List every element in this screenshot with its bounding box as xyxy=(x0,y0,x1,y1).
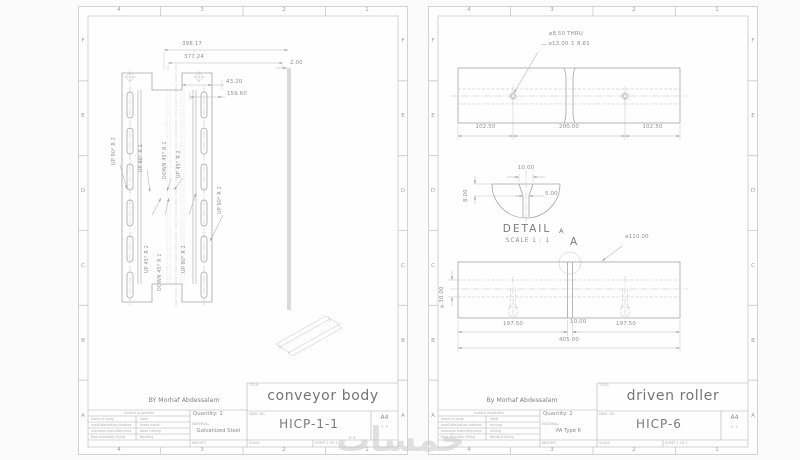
property-label: final assembly fixing xyxy=(91,436,125,439)
bend-note: UP 90° R 2 xyxy=(113,109,118,165)
sheet-size: A4 xyxy=(721,415,748,421)
grid-col-label: 1 xyxy=(707,448,727,454)
property-value: bending xyxy=(140,436,153,439)
projection-marks-icon: ✳ ✳ xyxy=(721,425,748,429)
flat-pattern-view xyxy=(122,64,212,308)
property-value: turning xyxy=(490,424,502,427)
bend-note: UP 90° R 2 xyxy=(219,158,224,214)
grid-col-label: 2 xyxy=(274,8,294,14)
grid-row-label: B xyxy=(429,339,437,345)
grid-row-label: E xyxy=(399,114,407,120)
grid-col-label: 2 xyxy=(274,448,294,454)
bend-note: UP 90° R 2 xyxy=(140,116,145,172)
dwg-no-label: DWG. NO. xyxy=(599,413,615,416)
quantity: Quantity: 1 xyxy=(193,412,223,417)
dwg-no: HICP-6 xyxy=(599,418,719,430)
dim-left-span: 102.50 xyxy=(470,125,501,130)
title-label: TITLE: xyxy=(249,384,259,387)
property-label: blank or body xyxy=(91,418,114,421)
side-view xyxy=(288,68,290,310)
author-note: BY Morhaf Abdessalam xyxy=(124,398,244,404)
grid-col-label: 4 xyxy=(459,8,479,14)
bend-note: UP 45° R 2 xyxy=(178,122,183,178)
grid-row-label: E xyxy=(429,114,437,120)
grid-row-label: C xyxy=(399,264,407,270)
page: 4 3 2 1 4 3 2 1 F E D C B A F E D C B A … xyxy=(0,0,800,460)
grid-col-label: 3 xyxy=(192,448,212,454)
grid-row-label: D xyxy=(749,189,757,195)
grid-row-label: E xyxy=(79,114,87,120)
scale-label: SCALE xyxy=(599,442,610,445)
material-value: PA Type 6 xyxy=(540,429,597,434)
grid-col-label: 1 xyxy=(357,8,377,14)
detail-scale: SCALE 1 : 1 xyxy=(501,239,555,245)
bend-note: UP 90° R 2 xyxy=(183,217,188,273)
dim-diameter-110: ⌀110.00 xyxy=(614,235,660,240)
grid-col-label: 4 xyxy=(109,8,129,14)
grid-row-label: B xyxy=(749,339,757,345)
scale-label: SCALE xyxy=(249,442,260,445)
hole-callout-line1: ⌀8.50 THRU xyxy=(534,32,598,37)
dim-diameter-30: ⌀30.00 xyxy=(440,273,445,309)
dim-thickness: 2.00 xyxy=(290,61,303,66)
dim-right-span: 102.50 xyxy=(637,125,668,130)
grid-row-label: A xyxy=(79,414,87,420)
grid-col-label: 3 xyxy=(192,8,212,14)
sheet-driven-roller: 4 3 2 1 4 3 2 1 F E D C B A F E D C B A … xyxy=(428,6,758,455)
dim-overall-length: 405.00 xyxy=(554,338,584,343)
weight-label: WEIGHT: xyxy=(542,442,556,445)
grid-row-label: A xyxy=(399,414,407,420)
detail-marker-letter: A xyxy=(570,237,577,248)
grid-col-label: 4 xyxy=(109,448,129,454)
material-label: MATERIAL: xyxy=(542,423,559,426)
sheet-count-label: SHEET 1 OF 1 xyxy=(665,442,688,445)
property-value: fitting & fixing xyxy=(490,436,514,439)
dim-pitch: 159.60 xyxy=(227,92,247,97)
top-view xyxy=(450,68,688,123)
grid-col-label: 2 xyxy=(624,448,644,454)
grid-row-label: A xyxy=(749,414,757,420)
grid-row-label: E xyxy=(749,114,757,120)
grid-row-label: B xyxy=(399,339,407,345)
grid-row-label: C xyxy=(79,264,87,270)
property-value: laser cutting xyxy=(140,430,161,433)
bend-note: DOWN 45° R 2 xyxy=(164,105,169,179)
dim-seg-left: 197.50 xyxy=(498,322,528,327)
front-view xyxy=(450,252,688,322)
property-label: used fabrication method xyxy=(91,424,131,427)
grid-row-label: D xyxy=(429,189,437,195)
properties-header: surface properties xyxy=(438,412,540,415)
detail-ref-letter: A xyxy=(559,228,563,235)
property-value: shaft xyxy=(490,418,498,421)
detail-dim-inner: 5.00 xyxy=(545,192,558,197)
bend-note: DOWN 45° R 2 xyxy=(159,217,164,291)
drawing-title: driven roller xyxy=(600,389,746,403)
weight-label: WEIGHT: xyxy=(192,442,206,445)
hole-callout-line2: ⌴ ⌀13.00 ↧ 8.61 xyxy=(524,42,608,47)
grid-row-label: C xyxy=(429,264,437,270)
sheet-conveyor-body: 4 3 2 1 4 3 2 1 F E D C B A F E D C B A … xyxy=(78,6,408,455)
properties-header: surface properties xyxy=(88,412,190,415)
detail-dim-width: 10.00 xyxy=(512,166,540,171)
grid-row-label: F xyxy=(749,39,757,45)
dim-overall-length: 398.17 xyxy=(172,42,212,47)
property-value: steel xyxy=(140,418,148,421)
property-value: sheet metal xyxy=(140,424,160,427)
grid-col-label: 1 xyxy=(707,8,727,14)
material-label: MATERIAL: xyxy=(192,423,209,426)
material-value: Galvanized Steel xyxy=(190,429,247,434)
quantity: Quantity: 2 xyxy=(543,412,573,417)
watermark-text: خمسات xyxy=(336,420,465,460)
grid-col-label: 3 xyxy=(542,448,562,454)
sheet-count-label: SHEET 1 OF 1 xyxy=(315,442,338,445)
title-label: TITLE: xyxy=(599,384,609,387)
bend-note: UP 45° R 2 xyxy=(146,217,151,273)
grid-row-label: D xyxy=(399,189,407,195)
grid-row-label: F xyxy=(429,39,437,45)
detail-dim-depth: 8.00 xyxy=(464,178,469,202)
isometric-view xyxy=(276,316,342,356)
detail-title: DETAIL xyxy=(498,224,556,235)
property-label: unknown manufacturing xyxy=(91,430,131,433)
author-note: By Morhaf Abdessalam xyxy=(462,398,582,404)
dimension-lines xyxy=(448,52,680,351)
grid-row-label: F xyxy=(399,39,407,45)
grid-row-label: C xyxy=(749,264,757,270)
dim-slot-width: 10.00 xyxy=(570,320,586,325)
dim-center-span: 200.00 xyxy=(554,125,584,130)
grid-row-label: B xyxy=(79,339,87,345)
dim-offset: 43.20 xyxy=(226,80,242,85)
grid-col-label: 2 xyxy=(624,8,644,14)
detail-view xyxy=(492,170,560,225)
grid-col-label: 3 xyxy=(542,8,562,14)
grid-row-label: A xyxy=(429,414,437,420)
dim-seg-right: 197.50 xyxy=(611,322,641,327)
property-value: milling xyxy=(490,430,501,433)
grid-row-label: D xyxy=(79,189,87,195)
dim-flat-length: 377.24 xyxy=(176,55,212,60)
grid-row-label: F xyxy=(79,39,87,45)
drawing-title: conveyor body xyxy=(250,389,396,403)
dwg-no-label: DWG. NO. xyxy=(249,413,265,416)
